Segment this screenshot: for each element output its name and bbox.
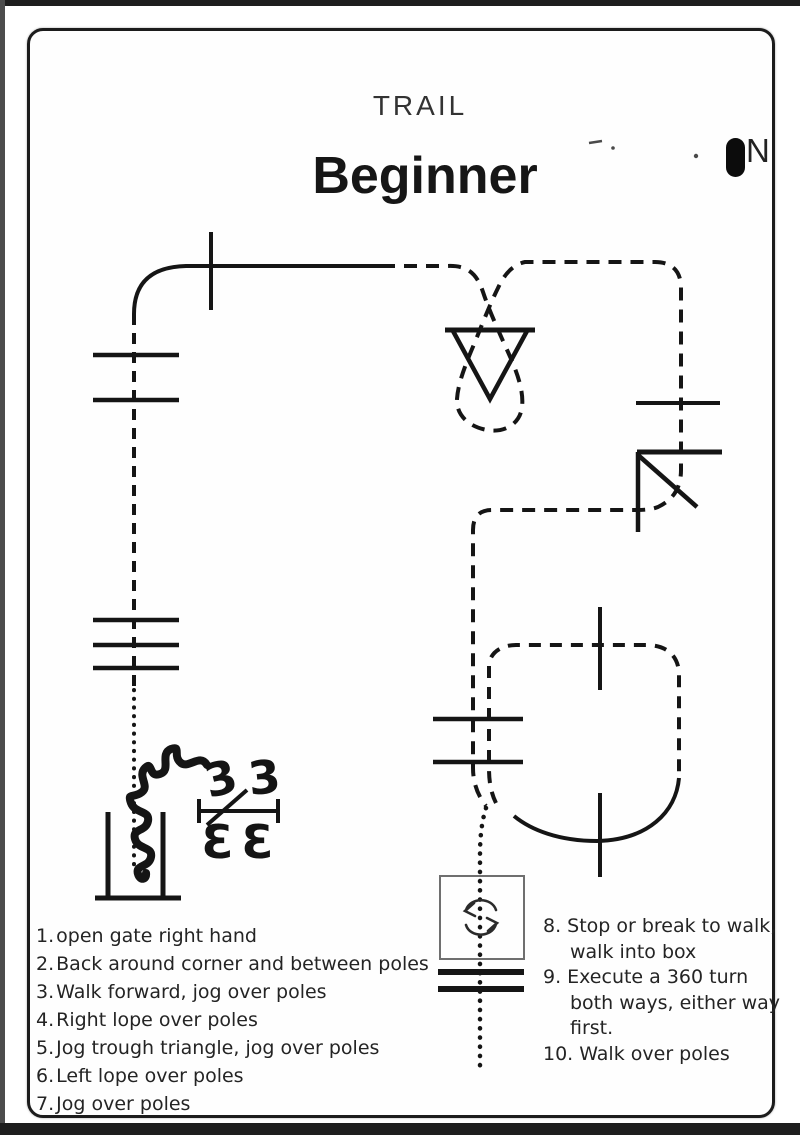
loop-dashed-part bbox=[489, 645, 679, 803]
instructions-left-list: 1.open gate right hand 2.Back around cor… bbox=[36, 922, 429, 1118]
instruction-item: 9.Execute a 360 turn bbox=[543, 965, 783, 991]
course-path-dashed-main bbox=[382, 262, 681, 806]
course-path-dotted-center bbox=[480, 808, 486, 1068]
instruction-text: walk into box bbox=[543, 940, 783, 966]
instruction-text: Left lope over poles bbox=[56, 1065, 243, 1087]
instruction-item: 7.Jog over poles bbox=[36, 1090, 429, 1118]
instruction-text: Walk forward, jog over poles bbox=[56, 981, 326, 1003]
instruction-number: 6. bbox=[36, 1065, 54, 1087]
instruction-item: 2.Back around corner and between poles bbox=[36, 950, 429, 978]
instruction-text: both ways, either way bbox=[543, 991, 783, 1017]
instruction-item: 6.Left lope over poles bbox=[36, 1062, 429, 1090]
instruction-item: 8.Stop or break to walk, bbox=[543, 914, 783, 940]
coil-glyph: 3 bbox=[246, 749, 283, 806]
instruction-text: Jog over poles bbox=[56, 1093, 190, 1115]
instruction-text: Right lope over poles bbox=[56, 1009, 258, 1031]
instruction-text: Jog trough triangle, jog over poles bbox=[56, 1037, 379, 1059]
instruction-item: 5.Jog trough triangle, jog over poles bbox=[36, 1034, 429, 1062]
coil-glyph: 3 bbox=[199, 749, 243, 809]
gate-obstacle: 3 3 3 3 bbox=[95, 748, 283, 898]
left-course-line bbox=[93, 314, 179, 872]
instruction-number: 2. bbox=[36, 953, 54, 975]
instruction-item: 1.open gate right hand bbox=[36, 922, 429, 950]
instructions-right-list: 8.Stop or break to walk, walk into box 9… bbox=[543, 914, 783, 1067]
instruction-text: Walk over poles bbox=[579, 1042, 730, 1068]
instruction-item: 4.Right lope over poles bbox=[36, 1006, 429, 1034]
instruction-item: 10.Walk over poles bbox=[543, 1042, 783, 1068]
instruction-text: open gate right hand bbox=[56, 925, 257, 947]
course-top-left-turn bbox=[134, 232, 382, 314]
instruction-number: 1. bbox=[36, 925, 54, 947]
instruction-text: Stop or break to walk, bbox=[567, 914, 776, 940]
instruction-number: 8. bbox=[543, 914, 561, 940]
instruction-number: 7. bbox=[36, 1093, 54, 1115]
instruction-number: 4. bbox=[36, 1009, 54, 1031]
instruction-number: 10. bbox=[543, 1042, 573, 1068]
coil-glyph: 3 bbox=[241, 815, 273, 869]
gate-rope-coils: 3 3 3 3 bbox=[199, 749, 283, 869]
trail-pattern-page: TRAIL Beginner N bbox=[0, 0, 800, 1135]
instruction-text: Back around corner and between poles bbox=[56, 953, 429, 975]
double-poles bbox=[433, 719, 523, 762]
print-artifact-marks bbox=[589, 141, 698, 158]
instruction-text: first. bbox=[543, 1016, 783, 1042]
instruction-item: 3.Walk forward, jog over poles bbox=[36, 978, 429, 1006]
instruction-text: Execute a 360 turn bbox=[567, 965, 748, 991]
instruction-number: 3. bbox=[36, 981, 54, 1003]
loop-solid-part bbox=[514, 778, 679, 841]
gate-chute bbox=[95, 812, 181, 898]
instruction-number: 9. bbox=[543, 965, 561, 991]
hand-drawn-scribble bbox=[130, 748, 207, 879]
coil-glyph: 3 bbox=[201, 815, 233, 869]
lope-loop bbox=[489, 607, 679, 877]
instruction-number: 5. bbox=[36, 1037, 54, 1059]
